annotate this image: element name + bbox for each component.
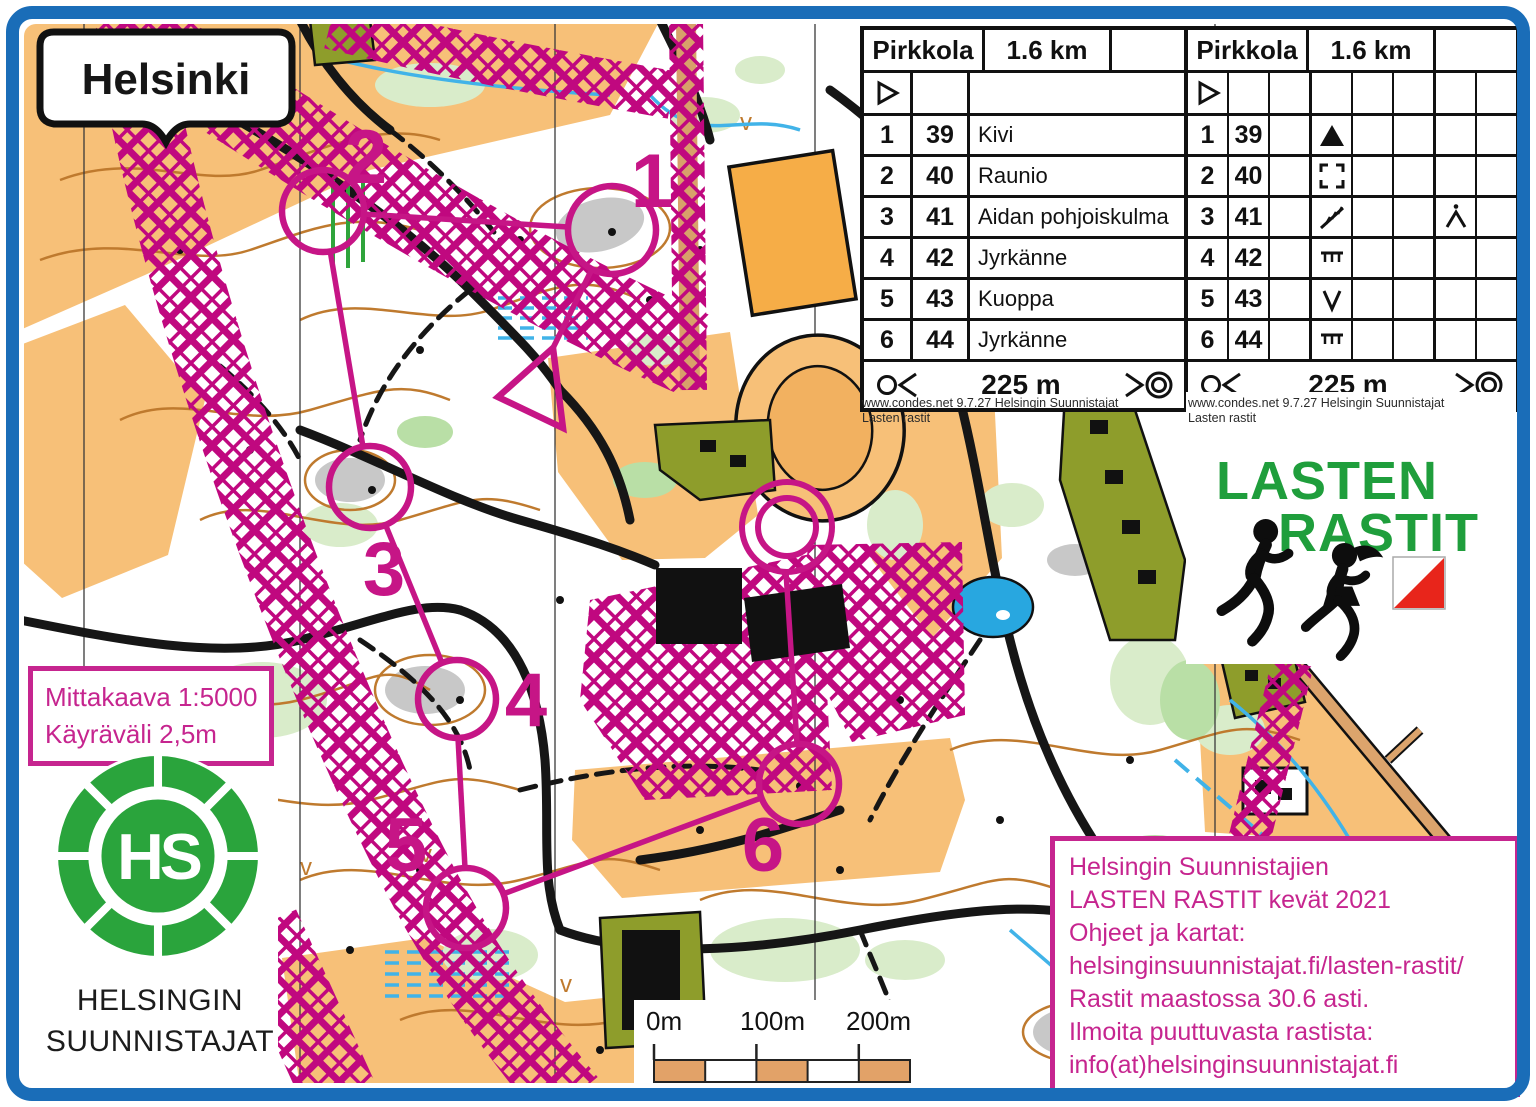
symbol-cell — [1436, 198, 1477, 236]
lasten-rastit-logo: LASTEN RASTIT — [1186, 392, 1516, 664]
symbol-cell — [1270, 321, 1312, 359]
svg-text:v: v — [560, 971, 572, 998]
scale-bar-graphic — [650, 1040, 930, 1088]
empty-cell — [1270, 73, 1312, 113]
symbol-cell — [1477, 321, 1516, 359]
symbol-cell — [1312, 157, 1353, 195]
scale-label-0: 0m — [646, 1006, 682, 1037]
empty-cell — [1477, 73, 1516, 113]
symbol-cell — [1436, 321, 1477, 359]
start-row — [1188, 73, 1516, 116]
symbol-cell — [1394, 198, 1436, 236]
scale-label-200: 200m — [846, 1006, 911, 1037]
symbol-cell — [1394, 321, 1436, 359]
club-name-line: SUUNNISTAJAT — [8, 1021, 312, 1062]
info-line: info(at)helsinginsuunnistajat.fi — [1069, 1049, 1501, 1082]
control-number-cell: 1 — [864, 116, 913, 154]
symbol-cell — [1477, 280, 1516, 318]
symbol-cell — [1312, 116, 1353, 154]
symbol-cell — [1312, 321, 1353, 359]
control-number: 3 — [363, 527, 405, 612]
symbol-cell — [1477, 116, 1516, 154]
runner-girl-icon — [1298, 540, 1390, 666]
condes-credit-left: www.condes.net 9.7.27 Helsingin Suunnist… — [862, 396, 1118, 426]
info-line: LASTEN RASTIT kevät 2021 — [1069, 884, 1501, 917]
pit-icon — [1317, 284, 1347, 314]
start-cell — [1188, 73, 1229, 113]
control-number-cell: 2 — [864, 157, 913, 195]
condes-credit-right: www.condes.net 9.7.27 Helsingin Suunnist… — [1188, 396, 1444, 426]
start-triangle-icon — [1195, 80, 1221, 106]
info-line: Ohjeet ja kartat: — [1069, 917, 1501, 950]
control-row: 442 — [1188, 239, 1516, 280]
symbol-cell — [1436, 239, 1477, 277]
control-description-cell: Jyrkänne — [970, 321, 1186, 359]
control-number-cell: 4 — [864, 239, 913, 277]
fence-icon — [1317, 202, 1347, 232]
control-code-cell: 41 — [913, 198, 970, 236]
control-number: 6 — [742, 803, 784, 888]
control-description-cell: Jyrkänne — [970, 239, 1186, 277]
empty-cell — [1229, 73, 1270, 113]
event-info-box: Helsingin SuunnistajienLASTEN RASTIT kev… — [1050, 836, 1520, 1097]
credit-line: Lasten rastit — [862, 411, 1118, 426]
control-number: 5 — [385, 803, 427, 888]
club-name: HELSINGIN SUUNNISTAJAT — [8, 980, 312, 1062]
control-number-cell: 6 — [864, 321, 913, 359]
event-name: Pirkkola — [1188, 30, 1309, 70]
finish-icon — [1122, 370, 1174, 400]
symbol-cell — [1270, 157, 1312, 195]
control-number: 1 — [631, 139, 673, 224]
control-code-cell: 39 — [913, 116, 970, 154]
symbol-cell — [1353, 239, 1394, 277]
start-triangle-icon — [874, 80, 900, 106]
symbol-cell — [1394, 239, 1436, 277]
runner-boy-icon — [1216, 514, 1302, 654]
control-number-cell: 3 — [864, 198, 913, 236]
empty-cell — [1394, 73, 1436, 113]
symbol-cell — [1353, 116, 1394, 154]
control-descriptions-text-sheet: Pirkkola 1.6 km 139Kivi240Raunio341Aidan… — [860, 26, 1190, 412]
empty-cell — [1312, 73, 1353, 113]
header-empty-cell — [1436, 30, 1516, 70]
credit-line: www.condes.net 9.7.27 Helsingin Suunnist… — [1188, 396, 1444, 411]
control-description-cell: Kuoppa — [970, 280, 1186, 318]
control-row: 543 — [1188, 280, 1516, 321]
symbol-cell — [1394, 280, 1436, 318]
course-distance: 1.6 km — [1309, 30, 1436, 70]
control-row: 240Raunio — [864, 157, 1186, 198]
scale-bar: 0m 100m 200m — [634, 1000, 948, 1092]
scale-label-100: 100m — [740, 1006, 805, 1037]
symbol-cell — [1353, 157, 1394, 195]
symbol-cell — [1270, 280, 1312, 318]
control-row: 442Jyrkänne — [864, 239, 1186, 280]
start-row — [864, 73, 1186, 116]
sheet-header: Pirkkola 1.6 km — [1188, 30, 1516, 73]
sheet-header: Pirkkola 1.6 km — [864, 30, 1186, 73]
cliff-icon — [1317, 325, 1347, 355]
hs-club-logo: HS — [52, 750, 264, 962]
orienteering-map-page: v v v v — [0, 0, 1536, 1107]
start-empty-cell — [970, 73, 1186, 113]
helsinki-badge-label: Helsinki — [82, 55, 251, 104]
symbol-cell — [1312, 280, 1353, 318]
symbol-cell — [1312, 198, 1353, 236]
control-code-cell: 44 — [1229, 321, 1270, 359]
empty-cell — [1353, 73, 1394, 113]
symbol-cell — [1477, 157, 1516, 195]
start-cell — [864, 73, 913, 113]
symbol-cell — [1394, 116, 1436, 154]
control-number-cell: 4 — [1188, 239, 1229, 277]
control-code-cell: 43 — [1229, 280, 1270, 318]
control-number-cell: 1 — [1188, 116, 1229, 154]
symbol-cell — [1353, 280, 1394, 318]
corner-icon — [1441, 202, 1471, 232]
club-name-line: HELSINGIN — [8, 980, 312, 1021]
control-rows: 139Kivi240Raunio341Aidan pohjoiskulma442… — [864, 116, 1186, 362]
ruin-icon — [1317, 161, 1347, 191]
control-row: 139Kivi — [864, 116, 1186, 157]
control-code-cell: 39 — [1229, 116, 1270, 154]
svg-text:v: v — [300, 854, 312, 881]
control-row: 139 — [1188, 116, 1516, 157]
control-code-cell: 40 — [913, 157, 970, 195]
control-number-cell: 3 — [1188, 198, 1229, 236]
control-description-cell: Kivi — [970, 116, 1186, 154]
control-row: 341 — [1188, 198, 1516, 239]
symbol-cell — [1436, 116, 1477, 154]
control-number: 4 — [505, 658, 547, 743]
info-line: Rastit maastossa 30.6 asti. — [1069, 983, 1501, 1016]
pond — [953, 577, 1033, 637]
control-number-cell: 2 — [1188, 157, 1229, 195]
cliff-icon — [1317, 243, 1347, 273]
control-descriptions-symbol-sheet: Pirkkola 1.6 km 139240341442543644 — [1184, 26, 1520, 412]
credit-line: www.condes.net 9.7.27 Helsingin Suunnist… — [862, 396, 1118, 411]
control-code-cell: 42 — [913, 239, 970, 277]
control-row: 240 — [1188, 157, 1516, 198]
control-flag-icon — [1392, 556, 1446, 610]
scale-line: Mittakaava 1:5000 — [45, 679, 257, 716]
boulder-icon — [1317, 120, 1347, 150]
control-code-cell: 43 — [913, 280, 970, 318]
start-empty-cell — [913, 73, 970, 113]
info-line: helsinginsuunnistajat.fi/lasten-rastit/ — [1069, 950, 1501, 983]
symbol-cell — [1270, 239, 1312, 277]
info-line: Ilmoita puuttuvasta rastista: — [1069, 1016, 1501, 1049]
contour-interval-line: Käyräväli 2,5m — [45, 716, 257, 753]
symbol-cell — [1270, 116, 1312, 154]
helsinki-badge: Helsinki — [30, 24, 302, 156]
control-number: 2 — [345, 115, 387, 200]
pond-island — [996, 610, 1010, 620]
control-code-cell: 42 — [1229, 239, 1270, 277]
header-empty-cell — [1112, 30, 1186, 70]
symbol-cell — [1270, 198, 1312, 236]
credit-line: Lasten rastit — [1188, 411, 1444, 426]
info-line: Helsingin Suunnistajien — [1069, 851, 1501, 884]
control-description-cell: Raunio — [970, 157, 1186, 195]
control-rows: 139240341442543644 — [1188, 116, 1516, 362]
empty-cell — [1436, 73, 1477, 113]
course-distance: 1.6 km — [985, 30, 1112, 70]
control-code-cell: 44 — [913, 321, 970, 359]
control-code-cell: 40 — [1229, 157, 1270, 195]
control-row: 644Jyrkänne — [864, 321, 1186, 362]
control-number-cell: 5 — [864, 280, 913, 318]
control-row: 644 — [1188, 321, 1516, 362]
control-row: 543Kuoppa — [864, 280, 1186, 321]
symbol-cell — [1477, 239, 1516, 277]
control-number-cell: 6 — [1188, 321, 1229, 359]
control-description-cell: Aidan pohjoiskulma — [970, 198, 1186, 236]
symbol-cell — [1394, 157, 1436, 195]
control-code-cell: 41 — [1229, 198, 1270, 236]
symbol-cell — [1436, 157, 1477, 195]
symbol-cell — [1353, 321, 1394, 359]
control-row: 341Aidan pohjoiskulma — [864, 198, 1186, 239]
symbol-cell — [1353, 198, 1394, 236]
symbol-cell — [1477, 198, 1516, 236]
symbol-cell — [1436, 280, 1477, 318]
hs-monogram: HS — [117, 821, 201, 893]
control-number-cell: 5 — [1188, 280, 1229, 318]
symbol-cell — [1312, 239, 1353, 277]
event-name: Pirkkola — [864, 30, 985, 70]
